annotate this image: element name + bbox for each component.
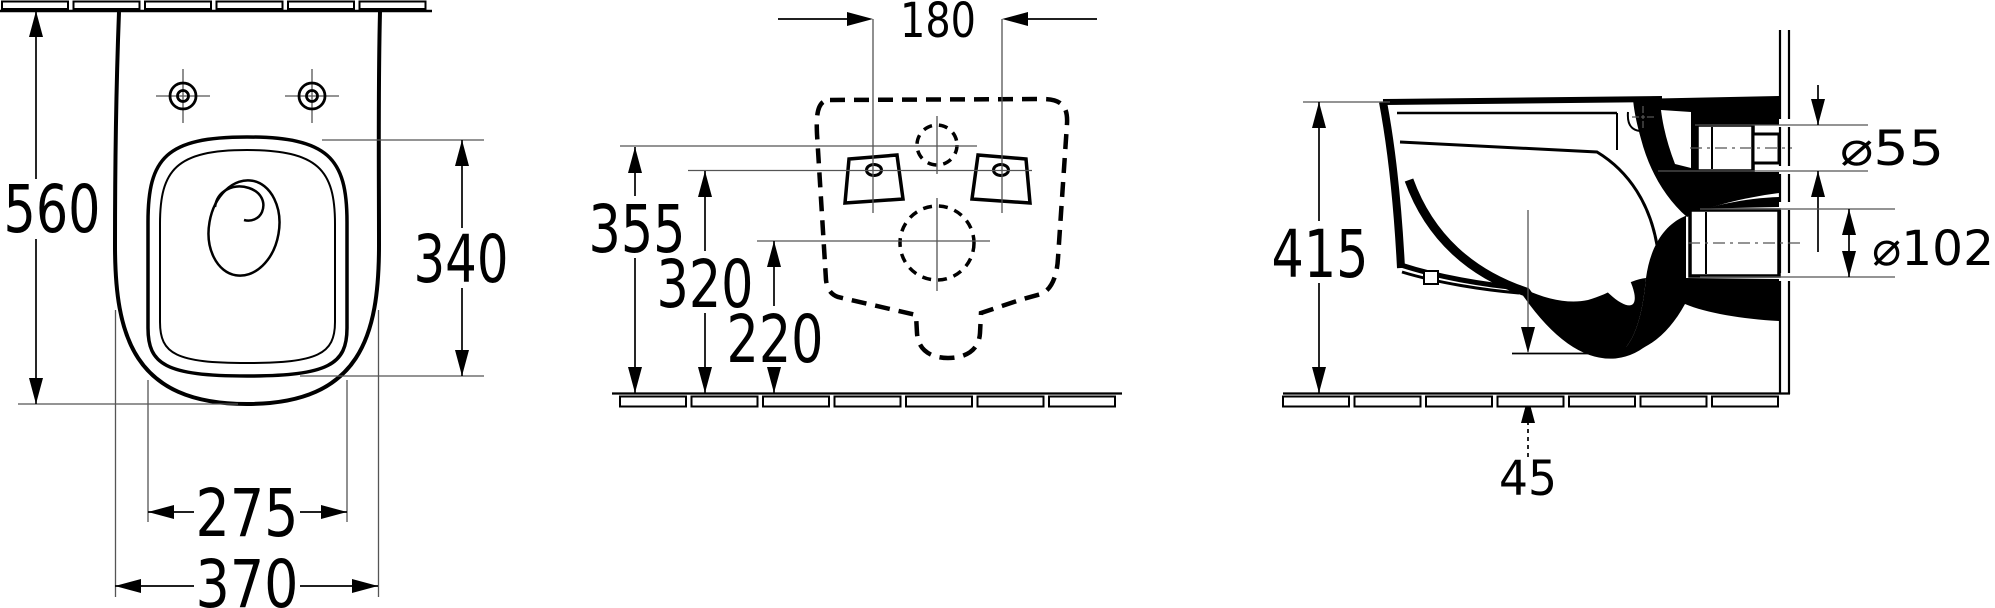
drain-outline [201, 175, 287, 282]
wc-dimension-drawing: 560 340 275 [0, 0, 1995, 608]
dim-275-label: 275 [196, 475, 299, 552]
seat-buffer [1424, 271, 1438, 284]
top-view: 560 340 275 [0, 2, 509, 608]
dim-415-label: 415 [1272, 216, 1369, 293]
dim-415: 415 [1272, 102, 1391, 393]
mount-hole-left-icon [156, 69, 210, 123]
wall-line [1780, 30, 1789, 394]
wc-section-outline [1383, 96, 1779, 356]
mount-hole-right-icon [285, 69, 339, 123]
dim-180: 180 [778, 0, 1097, 49]
technical-drawing-page: 560 340 275 [0, 0, 1995, 608]
wall-hatch [0, 2, 432, 12]
dim-d55-label: ⌀55 [1840, 121, 1944, 177]
rear-silhouette-outline [817, 99, 1067, 358]
outlet-circle-icon [900, 198, 974, 291]
dim-560: 560 [4, 11, 239, 404]
fixing-bracket-right [972, 155, 1030, 203]
dim-d102-label: ⌀102 [1872, 221, 1994, 277]
floor-hatch-rear [612, 394, 1122, 407]
dim-180-label: 180 [900, 0, 976, 49]
fixing-bracket-left [845, 155, 903, 203]
dim-45-label: 45 [1499, 451, 1557, 507]
floor-hatch-side [1283, 394, 1790, 407]
dim-370-label: 370 [196, 546, 299, 608]
side-view: 415 ⌀55 ⌀102 [1272, 30, 1995, 507]
dim-560-label: 560 [4, 171, 101, 248]
inlet-circle-icon [917, 116, 957, 174]
dim-220-label: 220 [727, 301, 824, 378]
rear-view: 180 355 320 220 [589, 0, 1123, 407]
dim-340-label: 340 [414, 221, 509, 298]
